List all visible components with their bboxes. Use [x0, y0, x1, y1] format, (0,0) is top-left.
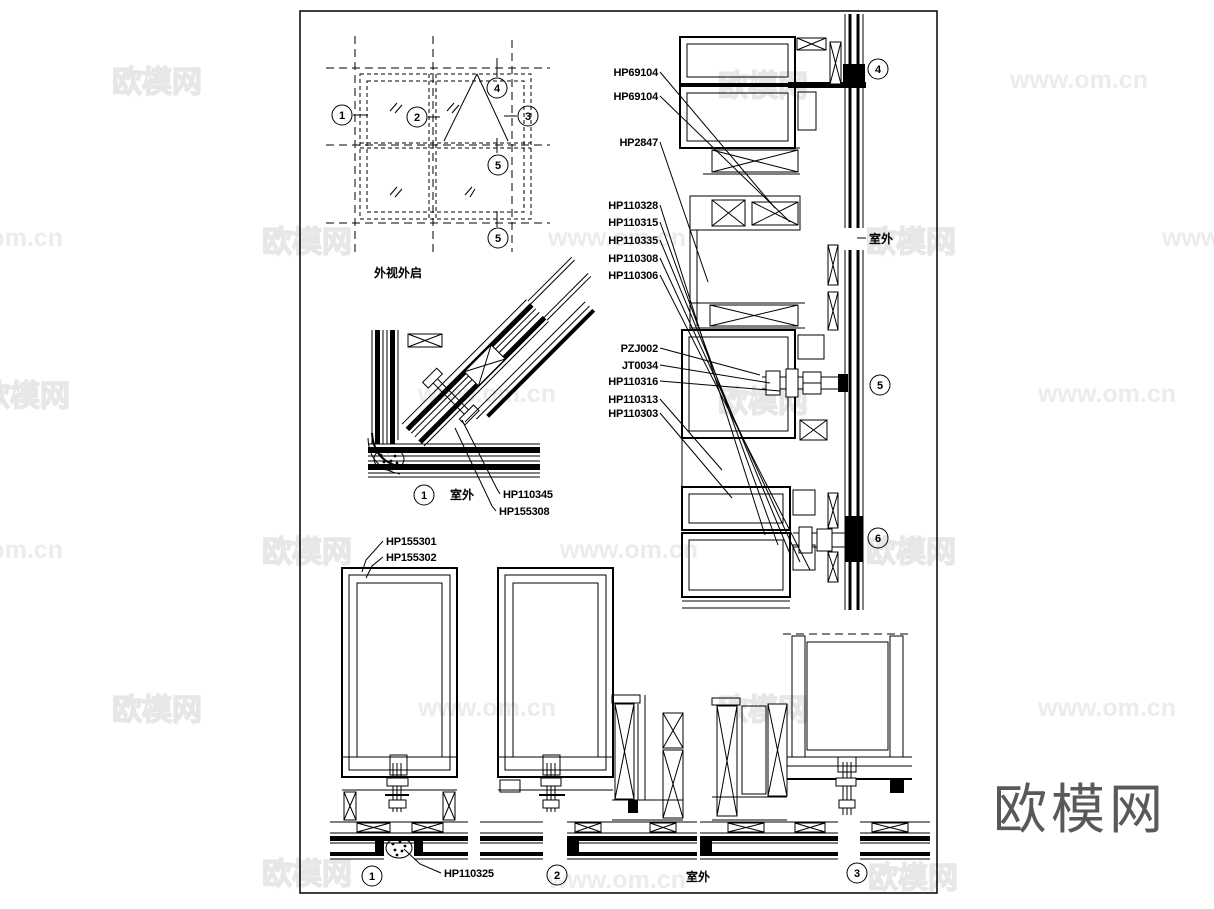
watermark-site: www.om.cn: [0, 536, 63, 564]
svg-text:4: 4: [875, 64, 882, 76]
watermark-site: www.om.cn: [1037, 694, 1176, 722]
watermark-site: www.om.cn: [1037, 380, 1176, 408]
callout-hp110325: HP110325: [444, 868, 494, 880]
detail-bubble-4: 4: [868, 59, 888, 79]
watermark-brand: 欧模网: [262, 858, 352, 891]
watermark-brand: 欧模网: [262, 536, 352, 569]
watermark-site: www.om.cn: [559, 536, 698, 564]
callout-hp110316: HP110316: [608, 376, 658, 388]
callout-hp155308: HP155308: [499, 506, 549, 518]
callout-hp69104-1: HP69104: [614, 67, 660, 79]
svg-text:3: 3: [525, 111, 531, 123]
right-section-stack: 室外 4: [680, 14, 893, 610]
callout-hp110303: HP110303: [608, 408, 658, 420]
brand-logo-text: 欧模网: [993, 780, 1167, 840]
callout-hp110335: HP110335: [608, 235, 658, 247]
grid-bubble-5b: 5: [488, 228, 508, 248]
watermark-site: www.om.cn: [1009, 66, 1148, 94]
grid-bubble-2: 2: [407, 107, 427, 127]
detail-5-profiles: [682, 196, 848, 487]
svg-text:3: 3: [854, 868, 860, 880]
svg-text:1: 1: [421, 490, 427, 502]
watermark-site: www.om.cn: [0, 224, 63, 252]
callout-hp110306: HP110306: [608, 270, 658, 282]
callout-hp155301: HP155301: [386, 536, 436, 548]
callout-pzj002: PZJ002: [621, 343, 658, 355]
svg-text:2: 2: [414, 112, 420, 124]
detail-bubble-sec1: 1: [362, 866, 382, 886]
grid-bubble-1: 1: [332, 105, 352, 125]
watermark-brand: 欧模网: [262, 226, 352, 259]
callout-hp110328: HP110328: [608, 200, 658, 212]
svg-text:6: 6: [875, 533, 881, 545]
detail-bubble-corner: 1: [414, 485, 434, 505]
bottom-section-2: 2 室外: [480, 568, 710, 885]
bottom-section-3: 3: [700, 634, 930, 883]
svg-text:4: 4: [494, 83, 501, 95]
outdoor-label-corner: 室外: [450, 487, 474, 502]
callout-hp110313: HP110313: [608, 394, 658, 406]
svg-text:2: 2: [554, 870, 560, 882]
callout-hp155302: HP155302: [386, 552, 436, 564]
svg-text:1: 1: [369, 871, 375, 883]
watermark-site: www.om.cn: [547, 866, 686, 894]
callout-hp69104-2: HP69104: [614, 91, 660, 103]
diagonal-mullion: [391, 245, 610, 464]
svg-text:5: 5: [495, 233, 501, 245]
grid-bubble-5: 5: [488, 155, 508, 175]
watermark-site: www.om.cn: [417, 694, 556, 722]
detail-bubble-sec3: 3: [847, 863, 867, 883]
watermark-brand: 欧模网: [0, 380, 70, 413]
watermark-brand: 欧模网: [112, 66, 202, 99]
plan-title: 外视外启: [374, 265, 422, 280]
detail-4-profiles: [680, 37, 841, 174]
watermark-brand: 欧模网: [112, 694, 202, 727]
plan-elevation-view: 1 2 3 4 5 5 外视外启: [326, 36, 550, 280]
svg-text:5: 5: [495, 160, 501, 172]
callout-hp110308: HP110308: [608, 253, 658, 265]
svg-text:1: 1: [339, 110, 345, 122]
callout-jt0034: JT0034: [622, 360, 659, 372]
callout-hp2847: HP2847: [619, 137, 658, 149]
outdoor-label-bottom: 室外: [686, 869, 710, 884]
grid-bubble-3: 3: [518, 106, 538, 126]
cad-drawing-page: 欧模网 欧模网 www.om.cn www.om.cn 欧模网 www.om.c…: [0, 0, 1214, 909]
callout-hp110315: HP110315: [608, 217, 658, 229]
outdoor-label-mullion: 室外: [869, 231, 893, 246]
drawing-canvas: 欧模网 欧模网 www.om.cn www.om.cn 欧模网 www.om.c…: [0, 0, 1214, 909]
svg-text:5: 5: [877, 380, 883, 392]
watermark-brand: 欧模网: [868, 862, 958, 895]
watermark-layer: 欧模网 欧模网 www.om.cn www.om.cn 欧模网 www.om.c…: [0, 66, 1214, 895]
watermark-site: www.om.cn: [1161, 224, 1214, 252]
detail-6-profiles: [682, 487, 863, 608]
detail-bubble-5: 5: [870, 375, 890, 395]
callout-hp110345: HP110345: [503, 489, 553, 501]
